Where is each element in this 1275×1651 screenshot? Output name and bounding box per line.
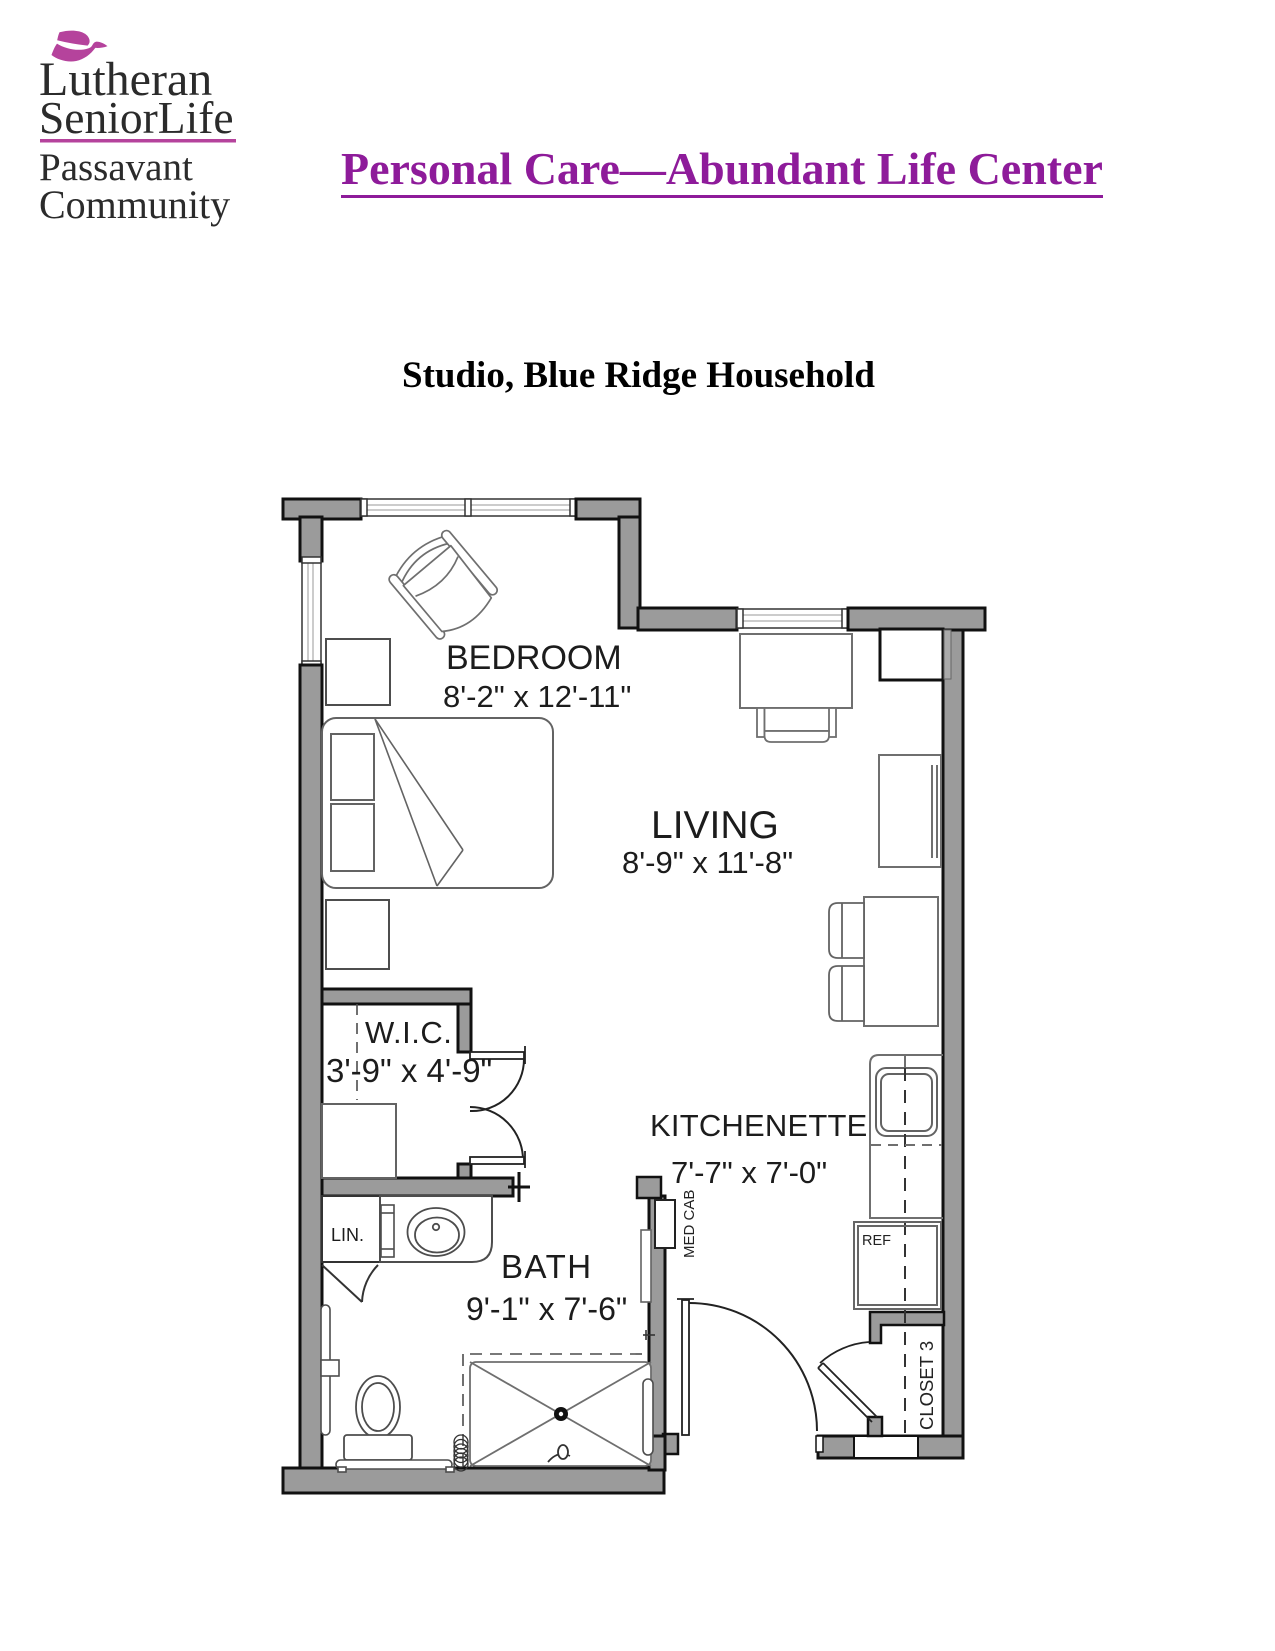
svg-text:BATH: BATH — [501, 1248, 593, 1285]
svg-text:3'-9" x 4'-9": 3'-9" x 4'-9" — [326, 1052, 492, 1089]
svg-text:W.I.C.: W.I.C. — [365, 1015, 452, 1050]
svg-text:CLOSET 3: CLOSET 3 — [916, 1341, 937, 1430]
svg-text:9'-1" x 7'-6": 9'-1" x 7'-6" — [466, 1291, 627, 1327]
svg-text:LIVING: LIVING — [651, 804, 779, 847]
svg-text:8'-9" x 11'-8": 8'-9" x 11'-8" — [622, 845, 793, 880]
svg-text:BEDROOM: BEDROOM — [446, 639, 622, 677]
svg-text:KITCHENETTE: KITCHENETTE — [650, 1108, 868, 1143]
svg-text:MED CAB: MED CAB — [681, 1190, 698, 1258]
svg-text:REF: REF — [862, 1233, 891, 1249]
svg-text:8'-2" x 12'-11": 8'-2" x 12'-11" — [443, 679, 631, 714]
svg-text:LIN.: LIN. — [331, 1225, 364, 1245]
svg-text:7'-7" x 7'-0": 7'-7" x 7'-0" — [671, 1155, 827, 1190]
